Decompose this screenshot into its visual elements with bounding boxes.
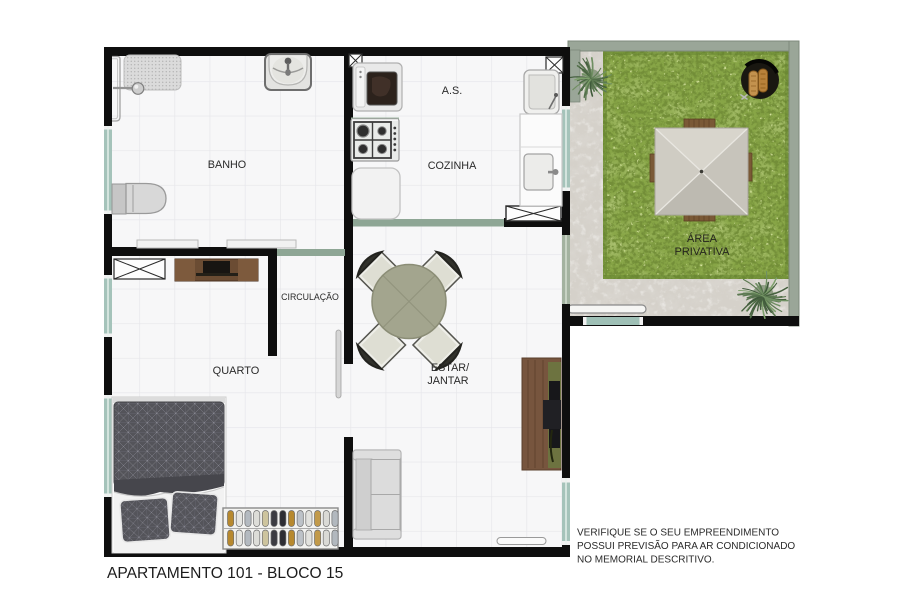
svg-text:ÁREA: ÁREA (687, 232, 718, 245)
svg-text:PRIVATIVA: PRIVATIVA (674, 246, 730, 258)
svg-text:BANHO: BANHO (208, 159, 246, 171)
svg-text:QUARTO: QUARTO (213, 365, 260, 377)
svg-text:ESTAR/: ESTAR/ (431, 362, 469, 374)
svg-text:COZINHA: COZINHA (428, 160, 477, 172)
svg-text:POSSUI PREVISÃO PARA AR CONDIC: POSSUI PREVISÃO PARA AR CONDICIONADO (577, 539, 795, 552)
svg-text:JANTAR: JANTAR (427, 375, 468, 387)
svg-text:NO MEMORIAL DESCRITIVO.: NO MEMORIAL DESCRITIVO. (577, 555, 714, 566)
svg-text:VERIFIQUE SE O SEU EMPREENDIME: VERIFIQUE SE O SEU EMPREENDIMENTO (577, 528, 779, 539)
svg-text:CIRCULAÇÃO: CIRCULAÇÃO (281, 292, 339, 302)
svg-text:A.S.: A.S. (442, 85, 462, 97)
svg-text:APARTAMENTO 101 - BLOCO 15: APARTAMENTO 101 - BLOCO 15 (107, 565, 344, 582)
